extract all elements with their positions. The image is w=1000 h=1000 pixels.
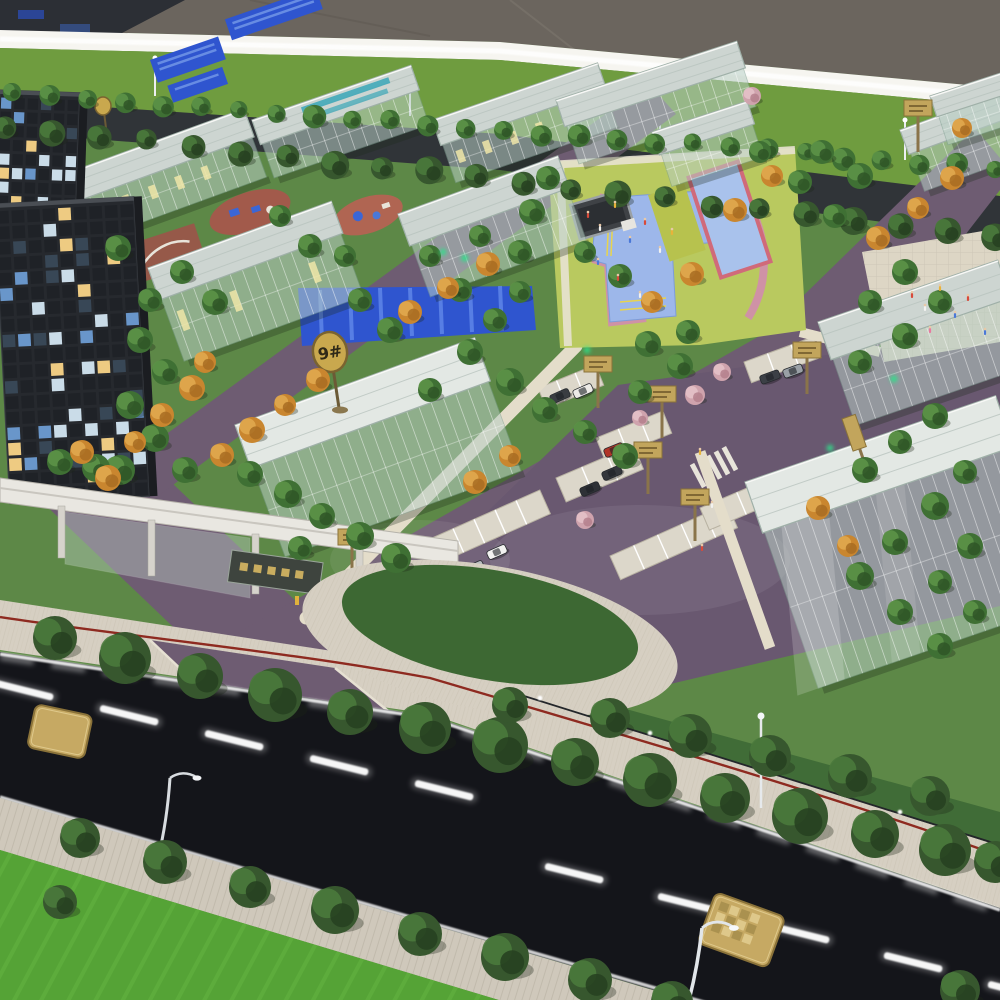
miniature-person bbox=[587, 211, 590, 218]
miniature-person bbox=[701, 544, 704, 551]
gate-bollard bbox=[295, 596, 299, 605]
miniature-person bbox=[711, 501, 714, 508]
miniature-person bbox=[671, 228, 674, 235]
miniature-person bbox=[954, 311, 957, 318]
green-led bbox=[827, 445, 833, 451]
scene-canvas: 9# bbox=[0, 0, 1000, 1000]
architectural-model-photo: 9# bbox=[0, 0, 1000, 1000]
miniature-person bbox=[659, 246, 662, 253]
miniature-person bbox=[617, 274, 620, 281]
gate-column bbox=[58, 506, 65, 558]
miniature-person bbox=[929, 326, 932, 333]
miniature-person bbox=[629, 236, 632, 243]
miniature-person bbox=[644, 218, 647, 225]
miniature-person bbox=[911, 291, 914, 298]
miniature-person bbox=[967, 294, 970, 301]
miniature-person bbox=[599, 224, 602, 231]
miniature-person bbox=[699, 448, 702, 455]
miniature-person bbox=[984, 328, 987, 335]
residential-tower bbox=[0, 90, 88, 211]
green-led bbox=[440, 249, 446, 255]
green-led bbox=[584, 347, 590, 353]
miniature-person bbox=[939, 284, 942, 291]
gate-column bbox=[148, 520, 155, 576]
miniature-person bbox=[639, 291, 642, 298]
miniature-person bbox=[614, 201, 617, 208]
distant-pool-patch bbox=[18, 10, 44, 19]
miniature-person bbox=[597, 258, 600, 265]
miniature-person bbox=[924, 304, 927, 311]
